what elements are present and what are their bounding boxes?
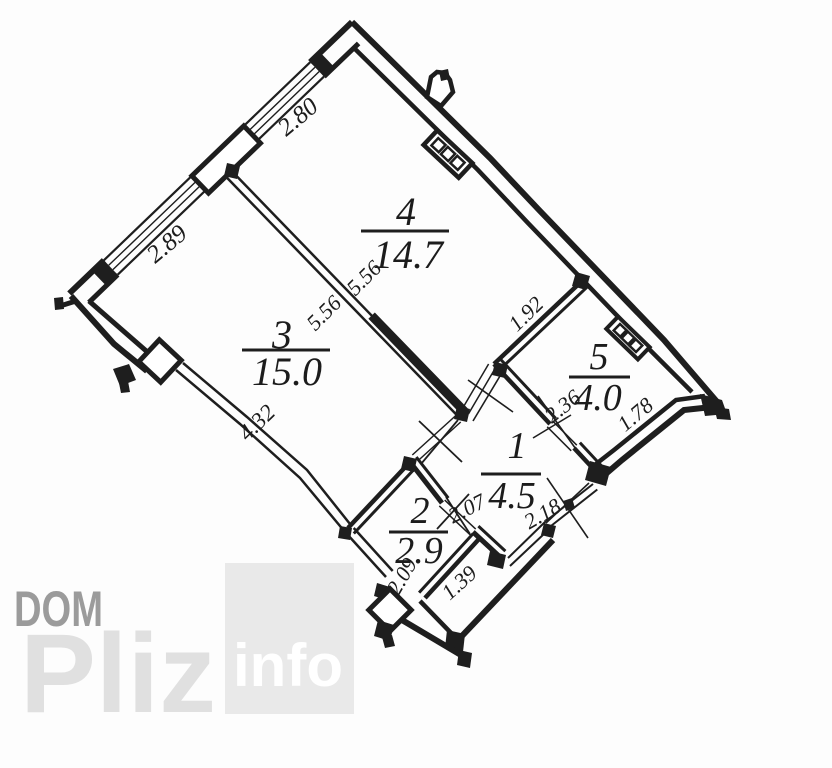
svg-text:4.0: 4.0	[574, 377, 622, 419]
svg-text:1: 1	[508, 425, 527, 467]
svg-text:14.7: 14.7	[373, 232, 445, 277]
svg-text:info: info	[233, 632, 343, 699]
svg-text:5: 5	[590, 336, 609, 378]
svg-text:2: 2	[411, 490, 430, 532]
svg-text:15.0: 15.0	[252, 349, 322, 394]
svg-text:4: 4	[396, 189, 416, 234]
svg-text:Pliz: Pliz	[20, 611, 216, 736]
svg-text:5.56: 5.56	[301, 290, 346, 335]
svg-text:2.07: 2.07	[444, 488, 491, 528]
